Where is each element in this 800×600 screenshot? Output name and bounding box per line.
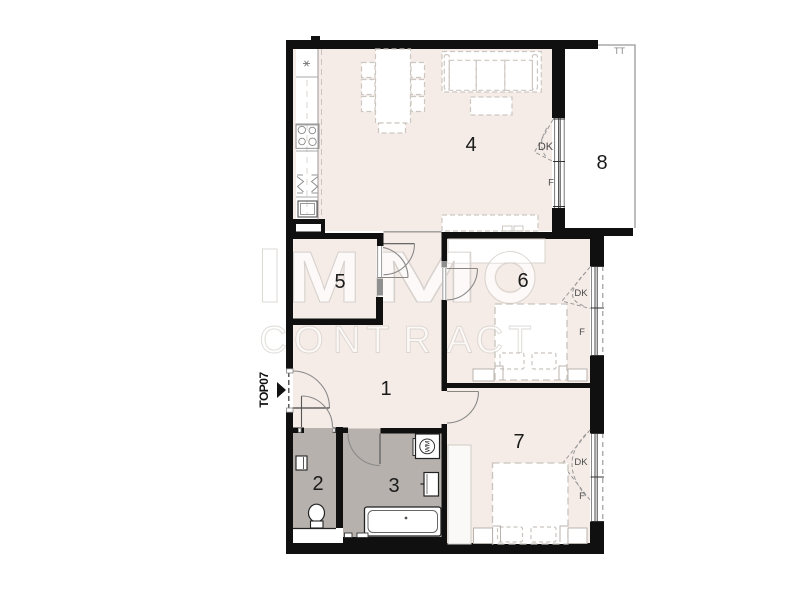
svg-text:O: O: [294, 320, 324, 362]
svg-text:T: T: [366, 320, 389, 362]
svg-text:C: C: [260, 320, 287, 362]
svg-text:N: N: [333, 320, 360, 362]
svg-text:2: 2: [312, 473, 323, 495]
svg-text:6: 6: [517, 270, 528, 292]
svg-text:DK: DK: [538, 141, 554, 153]
svg-text:DK: DK: [574, 457, 588, 468]
svg-text:7: 7: [513, 431, 524, 453]
svg-text:F: F: [579, 327, 585, 338]
svg-text:TT: TT: [614, 46, 625, 56]
svg-text:TOP07: TOP07: [257, 372, 271, 408]
svg-text:WM: WM: [425, 441, 432, 453]
svg-text:4: 4: [465, 134, 476, 156]
svg-text:M: M: [288, 237, 362, 318]
svg-text:F: F: [579, 491, 585, 502]
svg-text:3: 3: [388, 475, 399, 497]
svg-text:T: T: [508, 320, 531, 362]
svg-text:F: F: [548, 178, 554, 189]
svg-text:5: 5: [334, 271, 345, 293]
svg-text:1: 1: [380, 378, 391, 400]
svg-text:8: 8: [596, 152, 607, 174]
svg-text:A: A: [447, 320, 473, 362]
svg-text:DK: DK: [574, 288, 588, 299]
svg-text:R: R: [404, 320, 431, 362]
